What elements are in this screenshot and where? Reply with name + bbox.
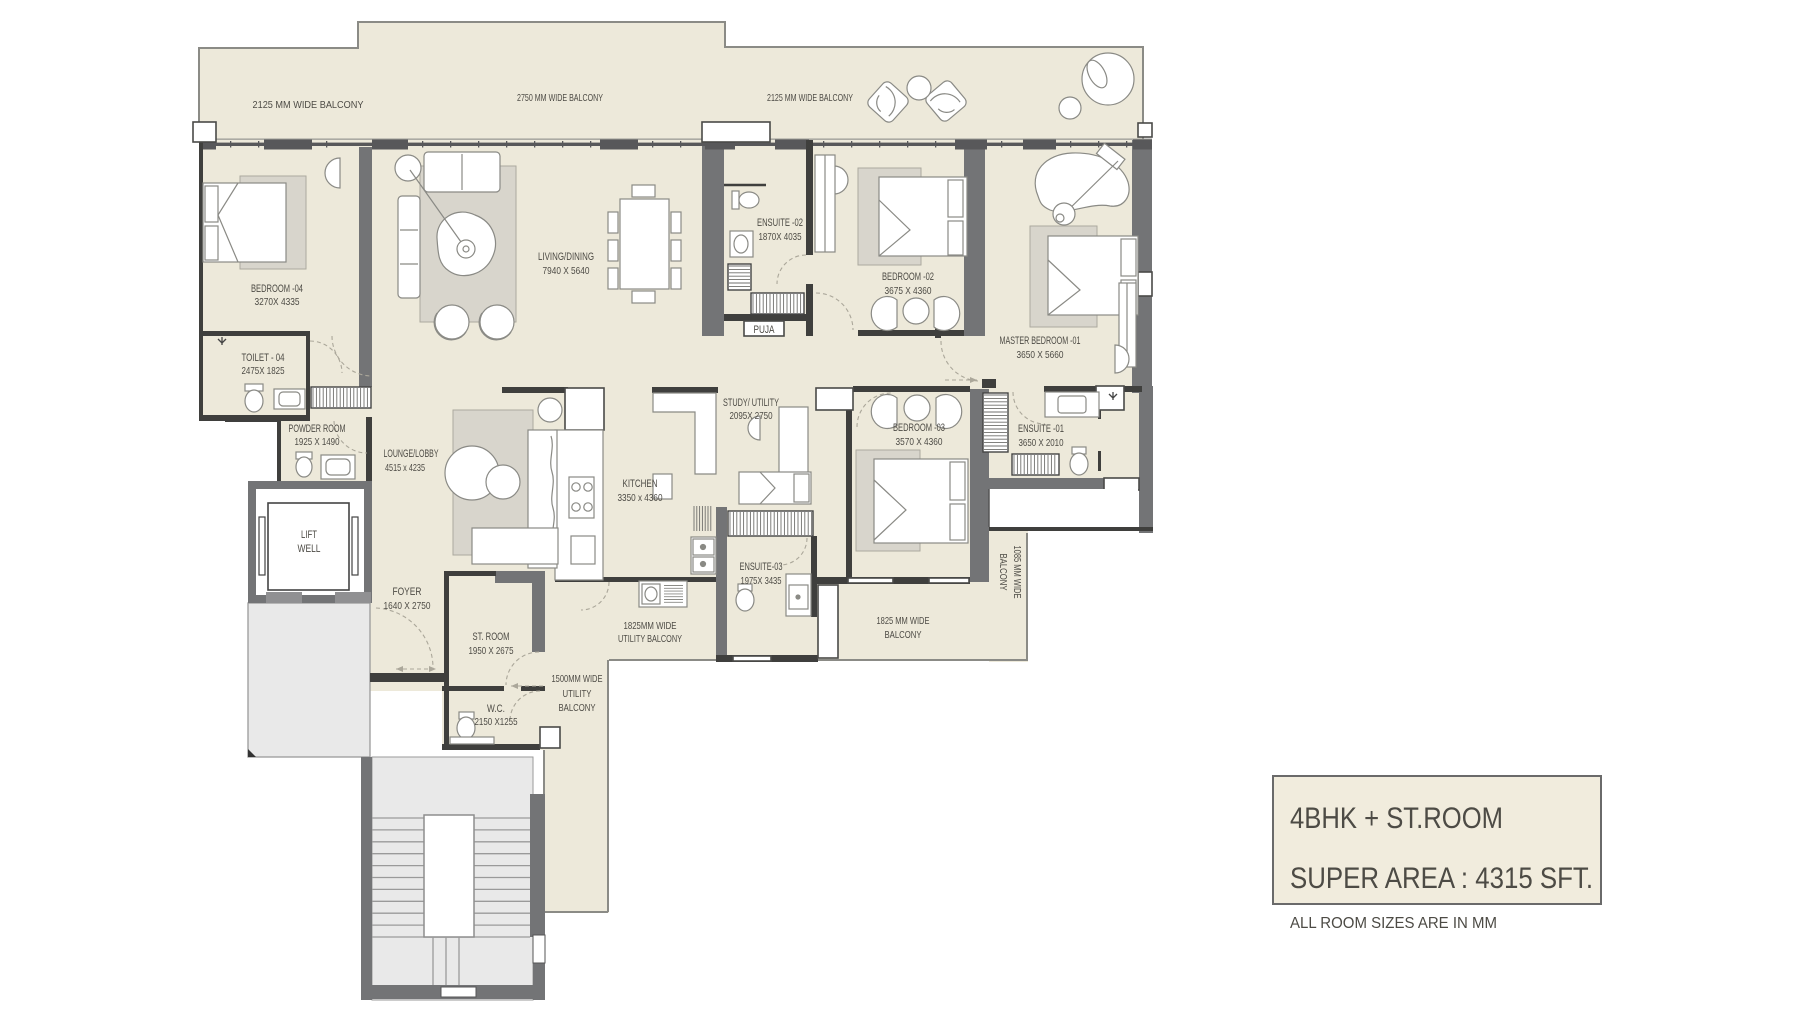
svg-text:1825MM WIDE: 1825MM WIDE <box>624 620 677 632</box>
svg-text:1950 X 2675: 1950 X 2675 <box>469 645 514 657</box>
svg-text:STUDY/ UTILITY: STUDY/ UTILITY <box>723 397 779 409</box>
svg-text:ENSUITE -02: ENSUITE -02 <box>757 217 803 229</box>
svg-text:FOYER: FOYER <box>393 586 422 598</box>
svg-text:2475X 1825: 2475X 1825 <box>242 365 285 377</box>
svg-text:LOUNGE/LOBBY: LOUNGE/LOBBY <box>384 448 439 460</box>
svg-text:2125 MM WIDE BALCONY: 2125 MM WIDE BALCONY <box>767 92 853 104</box>
svg-text:TOILET - 04: TOILET - 04 <box>242 352 285 364</box>
svg-text:UTILITY BALCONY: UTILITY BALCONY <box>618 633 682 645</box>
svg-text:3650 X 2010: 3650 X 2010 <box>1019 437 1064 449</box>
svg-text:LIVING/DINING: LIVING/DINING <box>538 251 594 263</box>
svg-text:1975X 3435: 1975X 3435 <box>741 575 782 587</box>
svg-text:KITCHEN: KITCHEN <box>623 478 658 490</box>
svg-text:SUPER AREA : 4315 SFT.: SUPER AREA : 4315 SFT. <box>1290 862 1593 895</box>
svg-text:BEDROOM -04: BEDROOM -04 <box>251 283 303 295</box>
svg-text:ENSUITE -01: ENSUITE -01 <box>1018 423 1064 435</box>
svg-text:3570 X 4360: 3570 X 4360 <box>896 436 943 448</box>
svg-text:BEDROOM -02: BEDROOM -02 <box>882 271 934 283</box>
svg-text:1825 MM WIDE: 1825 MM WIDE <box>877 615 930 627</box>
svg-text:1640 X 2750: 1640 X 2750 <box>384 600 431 612</box>
svg-text:3675 X 4360: 3675 X 4360 <box>885 285 932 297</box>
svg-text:4515 x 4235: 4515 x 4235 <box>385 462 425 474</box>
svg-text:UTILITY: UTILITY <box>563 688 592 700</box>
svg-text:W.C.: W.C. <box>487 703 505 715</box>
svg-text:1085 MM WIDE: 1085 MM WIDE <box>1011 546 1023 599</box>
svg-text:ALL ROOM SIZES ARE IN MM: ALL ROOM SIZES ARE IN MM <box>1290 915 1497 932</box>
svg-text:3650 X 5660: 3650 X 5660 <box>1017 349 1064 361</box>
svg-text:2750 MM WIDE BALCONY: 2750 MM WIDE BALCONY <box>517 92 603 104</box>
svg-text:1870X 4035: 1870X 4035 <box>759 231 802 243</box>
svg-text:WELL: WELL <box>298 543 321 555</box>
svg-text:2125 MM WIDE BALCONY: 2125 MM WIDE BALCONY <box>253 99 364 111</box>
svg-text:BEDROOM -03: BEDROOM -03 <box>893 422 945 434</box>
svg-text:LIFT: LIFT <box>301 529 317 541</box>
svg-text:ST. ROOM: ST. ROOM <box>473 631 510 643</box>
svg-text:2095X 2750: 2095X 2750 <box>730 410 773 422</box>
svg-text:PUJA: PUJA <box>754 324 775 336</box>
svg-text:BALCONY: BALCONY <box>997 554 1009 591</box>
svg-text:MASTER BEDROOM -01: MASTER BEDROOM -01 <box>1000 335 1081 347</box>
svg-text:1500MM WIDE: 1500MM WIDE <box>552 673 603 685</box>
svg-text:3270X 4335: 3270X 4335 <box>255 296 300 308</box>
svg-text:4BHK + ST.ROOM: 4BHK + ST.ROOM <box>1290 802 1503 835</box>
svg-text:BALCONY: BALCONY <box>885 629 922 641</box>
svg-text:2150 X1255: 2150 X1255 <box>475 716 518 728</box>
svg-text:BALCONY: BALCONY <box>559 702 596 714</box>
svg-text:POWDER ROOM: POWDER ROOM <box>289 423 346 435</box>
svg-text:3350 x 4360: 3350 x 4360 <box>618 492 663 504</box>
svg-text:1925 X 1490: 1925 X 1490 <box>295 436 340 448</box>
svg-text:7940 X 5640: 7940 X 5640 <box>543 265 590 277</box>
svg-text:ENSUITE-03: ENSUITE-03 <box>740 561 783 573</box>
